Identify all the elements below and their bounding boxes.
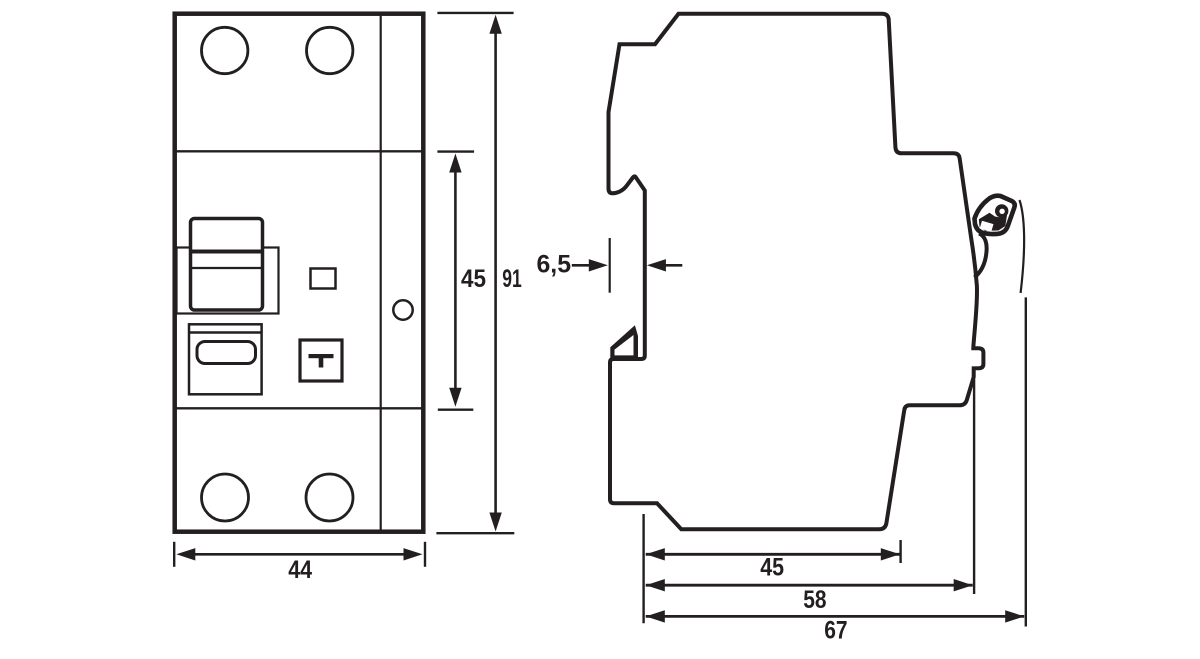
svg-text:45: 45	[760, 554, 784, 582]
svg-text:6,5: 6,5	[537, 251, 572, 279]
svg-text:45: 45	[461, 265, 486, 293]
svg-text:44: 44	[288, 556, 312, 584]
svg-text:67: 67	[824, 617, 847, 645]
svg-text:58: 58	[803, 586, 826, 614]
svg-text:91: 91	[502, 265, 522, 293]
